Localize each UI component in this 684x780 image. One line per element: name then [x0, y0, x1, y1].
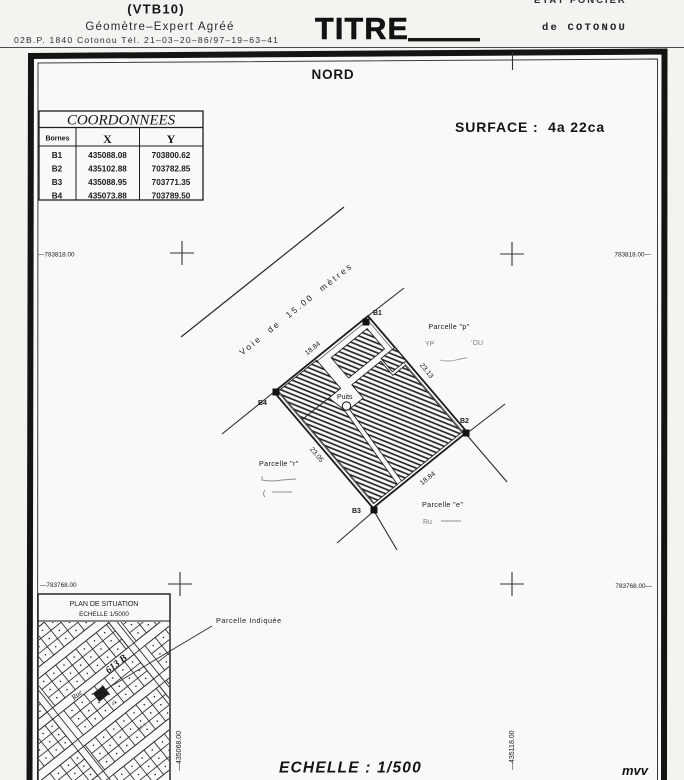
svg-text:B3: B3 — [52, 178, 63, 187]
svg-text:B3: B3 — [352, 508, 361, 515]
svg-text:—783818.00: —783818.00 — [38, 252, 75, 259]
svg-text:Bornes: Bornes — [45, 136, 69, 143]
svg-text:—783768.00: —783768.00 — [40, 582, 77, 589]
svg-text:(VTB10): (VTB10) — [127, 2, 185, 17]
svg-text:Ru: Ru — [423, 519, 432, 526]
svg-text:ETAT FONCIER: ETAT FONCIER — [534, 0, 627, 6]
svg-text:B4: B4 — [258, 400, 267, 407]
svg-text:Puits: Puits — [337, 394, 353, 401]
svg-text:Y: Y — [167, 132, 176, 146]
svg-text:Parcelle "p": Parcelle "p" — [428, 322, 469, 331]
svg-text:02B.P. 1840 Cotonou Tél. 21–03: 02B.P. 1840 Cotonou Tél. 21–03–20–86/97–… — [14, 35, 279, 45]
svg-text:435073.88: 435073.88 — [88, 192, 127, 201]
svg-text:YP: YP — [425, 341, 435, 348]
svg-text:783818.00—: 783818.00— — [614, 252, 651, 259]
svg-text:703771.35: 703771.35 — [152, 178, 191, 187]
svg-text:Parcelle "r": Parcelle "r" — [259, 459, 299, 468]
svg-text:de COTONOU: de COTONOU — [542, 22, 627, 34]
svg-text:—435118.00: —435118.00 — [509, 730, 516, 770]
svg-text:783768.00—: 783768.00— — [615, 583, 652, 590]
svg-text:TITRE: TITRE — [315, 12, 409, 46]
svg-text:Géomètre–Expert Agréé: Géomètre–Expert Agréé — [85, 21, 234, 33]
svg-text:ECHELLE 1/5000: ECHELLE 1/5000 — [79, 611, 129, 618]
svg-text:B2: B2 — [52, 165, 63, 174]
svg-text:435102.88: 435102.88 — [88, 165, 127, 174]
svg-text:Parcelle "e": Parcelle "e" — [422, 500, 463, 509]
svg-text:COORDONNEES: COORDONNEES — [67, 113, 176, 129]
svg-text:B2: B2 — [460, 418, 469, 425]
svg-text:—435068.00: —435068.00 — [176, 731, 183, 771]
svg-text:703800.62: 703800.62 — [152, 151, 191, 160]
svg-text:B4: B4 — [52, 192, 63, 201]
svg-text:B1: B1 — [52, 151, 63, 160]
svg-text:NORD: NORD — [312, 67, 355, 82]
svg-text:435088.95: 435088.95 — [88, 178, 127, 187]
svg-text:X: X — [103, 132, 112, 146]
svg-text:'OU: 'OU — [471, 340, 483, 347]
svg-text:ECHELLE : 1/500: ECHELLE : 1/500 — [279, 760, 422, 777]
svg-text:B1: B1 — [373, 310, 382, 317]
svg-text:SURFACE : 4a 22ca: SURFACE : 4a 22ca — [455, 119, 605, 135]
svg-text:mvv: mvv — [622, 763, 649, 778]
svg-text:703789.50: 703789.50 — [152, 192, 191, 201]
svg-text:PLAN DE SITUATION: PLAN DE SITUATION — [70, 601, 139, 608]
svg-text:Parcelle Indiquée: Parcelle Indiquée — [216, 616, 282, 625]
svg-text:703782.85: 703782.85 — [152, 165, 191, 174]
svg-text:435088.08: 435088.08 — [88, 151, 127, 160]
